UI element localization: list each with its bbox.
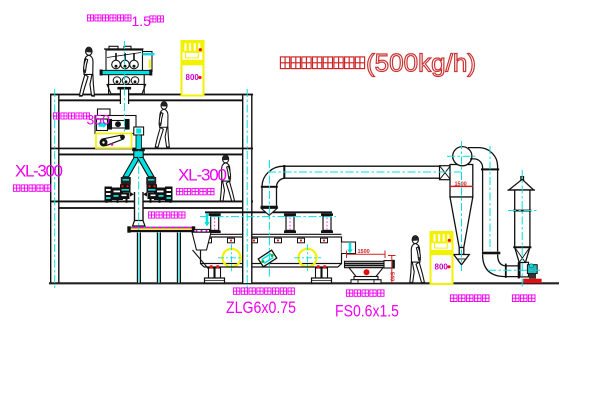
svg-text:800: 800 — [435, 262, 449, 271]
svg-text:FS0.6x1.5: FS0.6x1.5 — [335, 302, 399, 321]
svg-text:XL-300: XL-300 — [15, 162, 63, 181]
svg-text:350: 350 — [87, 112, 111, 128]
svg-text:1500: 1500 — [455, 182, 467, 188]
svg-text:1.5: 1.5 — [132, 13, 152, 29]
svg-text:XL-300: XL-300 — [178, 166, 227, 185]
svg-text:800: 800 — [186, 73, 200, 82]
svg-text:ZLG6x0.75: ZLG6x0.75 — [226, 298, 296, 317]
svg-text:540: 540 — [389, 272, 395, 281]
svg-text:(500kg/h): (500kg/h) — [366, 50, 476, 78]
svg-text:1500: 1500 — [358, 249, 370, 255]
